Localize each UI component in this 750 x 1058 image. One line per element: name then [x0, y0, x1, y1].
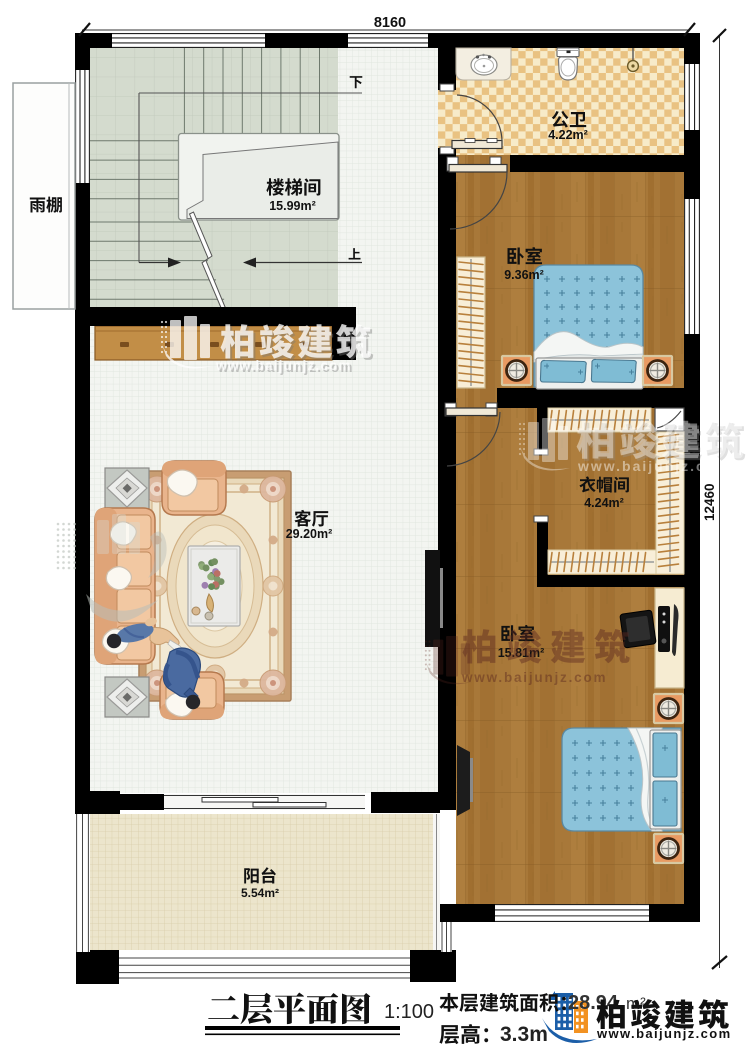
svg-text:www.baijunjz.com: www.baijunjz.com — [577, 458, 731, 474]
svg-text:3.3m: 3.3m — [500, 1023, 548, 1046]
svg-text:www.baijunjz.com: www.baijunjz.com — [596, 1026, 732, 1041]
svg-text:12460: 12460 — [702, 483, 717, 521]
svg-text:www.baijunjz.com: www.baijunjz.com — [215, 358, 352, 373]
svg-text:www.baijunjz.com: www.baijunjz.com — [461, 670, 607, 685]
svg-text:8160: 8160 — [374, 15, 406, 31]
svg-text:29.20m²: 29.20m² — [286, 527, 333, 541]
svg-text:9.36m²: 9.36m² — [504, 268, 544, 282]
svg-text:4.24m²: 4.24m² — [584, 496, 624, 510]
svg-text:15.99m²: 15.99m² — [269, 199, 316, 213]
svg-text:1:100: 1:100 — [384, 1001, 434, 1023]
svg-text:4.22m²: 4.22m² — [548, 128, 588, 142]
svg-text:5.54m²: 5.54m² — [241, 886, 279, 900]
